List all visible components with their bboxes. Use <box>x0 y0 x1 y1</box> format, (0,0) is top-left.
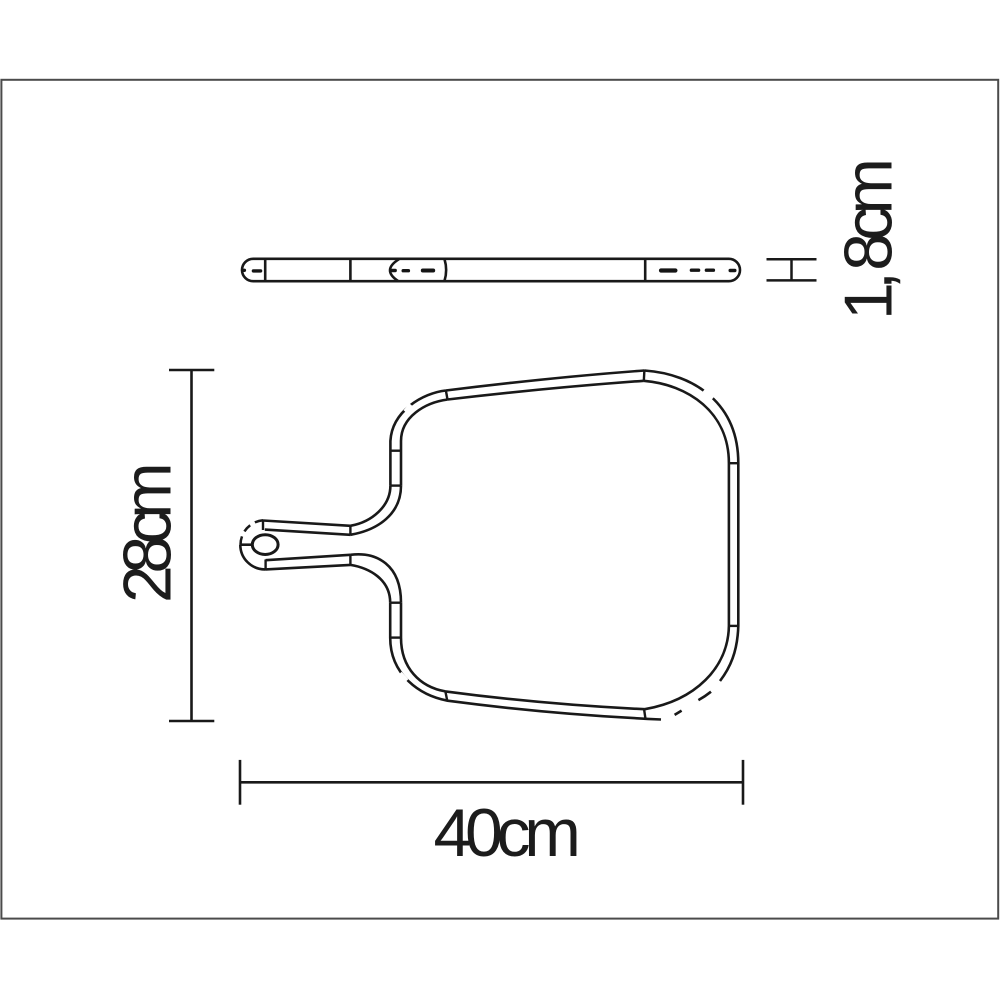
svg-text:1,8cm: 1,8cm <box>831 162 907 320</box>
svg-text:28cm: 28cm <box>110 466 186 603</box>
svg-text:40cm: 40cm <box>433 795 577 871</box>
